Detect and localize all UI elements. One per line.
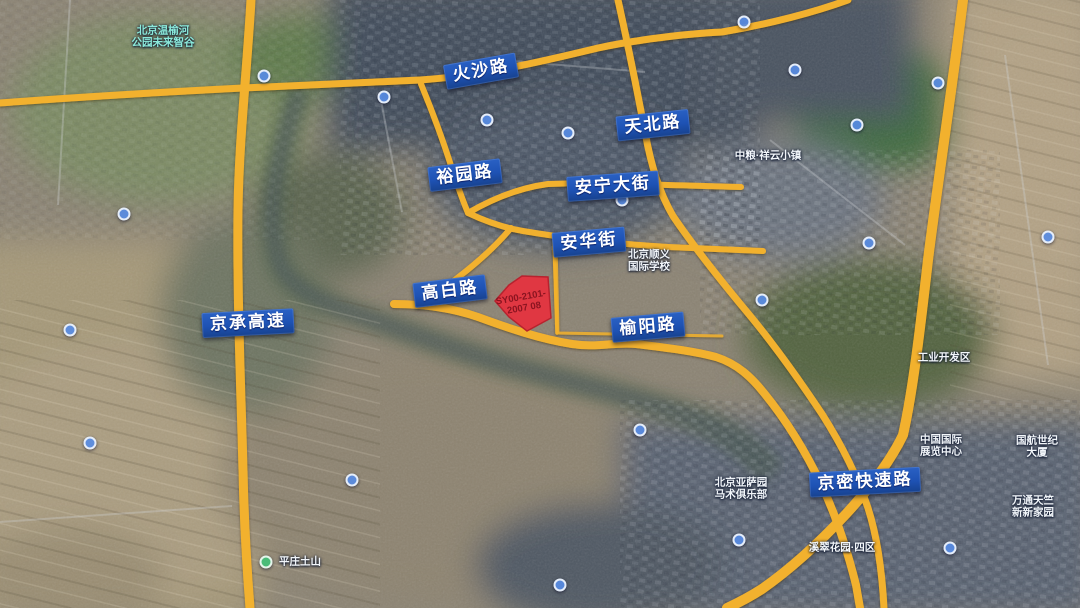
poi-dot-icon [118,208,131,221]
poi-dot-icon [944,542,957,555]
map-stage: SY00-2101- 2007 08 火沙路天北路裕园路安宁大街安华街高白路京承… [0,0,1080,608]
poi-label-xiangyun-town: 中粮·祥云小镇 [735,150,802,162]
poi-dot-icon [562,127,575,140]
poi-dot-icon [851,119,864,132]
poi-dot-icon [756,294,769,307]
poi-dot-icon [64,324,77,337]
road-label-jingcheng-expressway: 京承高速 [201,308,294,337]
satellite-map: SY00-2101- 2007 08 [0,0,1080,608]
poi-dot-icon [84,437,97,450]
poi-dot-icon [789,64,802,77]
poi-label-wenyuhe-park: 北京温榆河 公园未来智谷 [132,26,195,49]
poi-dot-icon [863,237,876,250]
poi-dot-icon [481,114,494,127]
poi-dot-icon [932,77,945,90]
poi-dot-icon [1042,231,1055,244]
poi-dot-icon [738,16,751,29]
poi-dot-icon [378,91,391,104]
poi-label-industrial-zone: 工业开发区 [918,352,971,364]
poi-label-china-intl-exhibition: 中国国际 展览中心 [920,435,962,458]
poi-dot-icon [634,424,647,437]
poi-dot-icon [346,474,359,487]
poi-label-pingzhuang-hill: 平庄土山 [279,556,321,568]
poi-dot-icon [258,70,271,83]
poi-label-guohang-tower: 国航世纪大厦 [1016,436,1059,459]
poi-label-xicui-garden: 溪翠花园·四区 [809,542,876,554]
poi-dot-icon [733,534,746,547]
poi-dot-icon [554,579,567,592]
poi-label-wantong-home: 万通天竺 新新家园 [1012,496,1054,519]
poi-label-shunyi-intl-school: 北京顺义 国际学校 [628,250,670,273]
poi-label-equestrian-club: 北京亚萨园 马术俱乐部 [715,478,768,501]
poi-dot-icon [260,556,273,569]
